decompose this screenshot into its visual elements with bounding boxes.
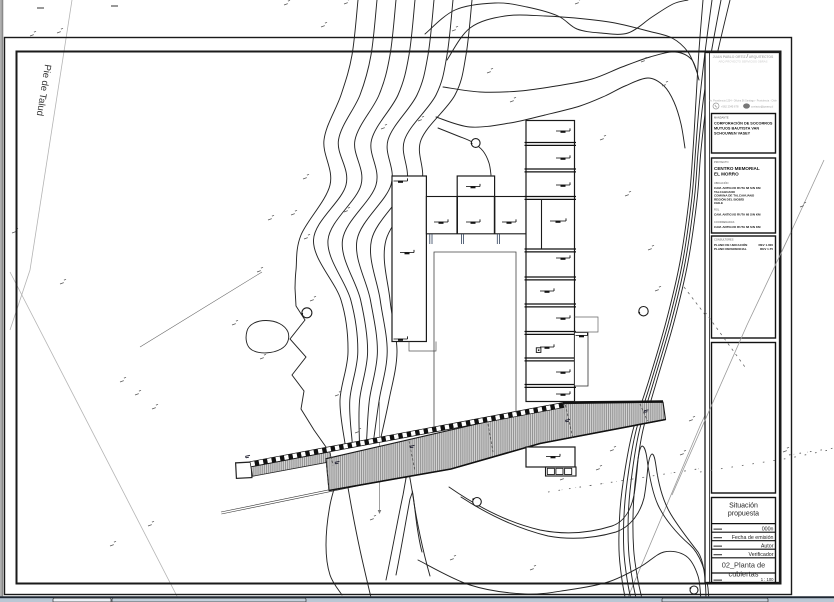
svg-text:CORPORACIÓN DE SOCORROS: CORPORACIÓN DE SOCORROS	[714, 121, 773, 126]
svg-text:Situación: Situación	[729, 503, 758, 510]
svg-text:Av. Providencia 1234 - Oficina: Av. Providencia 1234 - Oficina 56 Santia…	[709, 100, 777, 103]
svg-text:REV 1.75: REV 1.75	[760, 247, 773, 251]
svg-text:PROYECTO: PROYECTO	[714, 160, 729, 164]
svg-text:02_Planta de: 02_Planta de	[722, 561, 766, 570]
svg-text:Fecha de emisión: Fecha de emisión	[732, 535, 774, 541]
svg-text:SCHOUWEN VASEY: SCHOUWEN VASEY	[714, 132, 751, 136]
svg-text:000n: 000n	[762, 527, 774, 533]
svg-text:+562 2345 678: +562 2345 678	[721, 104, 739, 108]
svg-text:PLANO REFERENCIAL: PLANO REFERENCIAL	[714, 247, 747, 251]
svg-text:REV 1.000: REV 1.000	[758, 243, 773, 247]
svg-text:CONSULTORES: CONSULTORES	[714, 238, 734, 242]
svg-text:Verificador: Verificador	[748, 552, 773, 558]
svg-text:Autor: Autor	[761, 544, 774, 550]
svg-text:CAM. ANTIGUO RUTA 68 S/N KM: CAM. ANTIGUO RUTA 68 S/N KM	[714, 225, 761, 229]
svg-text:CAM. ANTIGUO RUTA 68 S/N KM: CAM. ANTIGUO RUTA 68 S/N KM	[714, 213, 761, 217]
svg-text:COORDENADAS: COORDENADAS	[714, 220, 735, 224]
svg-text:EL MORRO: EL MORRO	[714, 172, 739, 177]
svg-text:propuesta: propuesta	[728, 511, 759, 518]
svg-text:MANDANTE: MANDANTE	[714, 116, 729, 120]
svg-text:ARQ PROYECTO SERVICIOS OBRA: ARQ PROYECTO SERVICIOS OBRAS	[718, 60, 767, 64]
svg-text:contacto@jpoarq.cl: contacto@jpoarq.cl	[751, 104, 774, 108]
svg-text:MUTUOS BAUTISTA VAN: MUTUOS BAUTISTA VAN	[714, 127, 759, 131]
svg-text:ROL: ROL	[714, 208, 720, 212]
svg-text:cubiertas: cubiertas	[729, 570, 759, 579]
svg-text:CENTRO MEMORIAL: CENTRO MEMORIAL	[714, 166, 760, 171]
svg-text:CHILE: CHILE	[714, 201, 723, 205]
svg-text:1 : 100: 1 : 100	[761, 577, 774, 582]
svg-text:PLANO DE UBICACIÓN: PLANO DE UBICACIÓN	[714, 242, 747, 247]
